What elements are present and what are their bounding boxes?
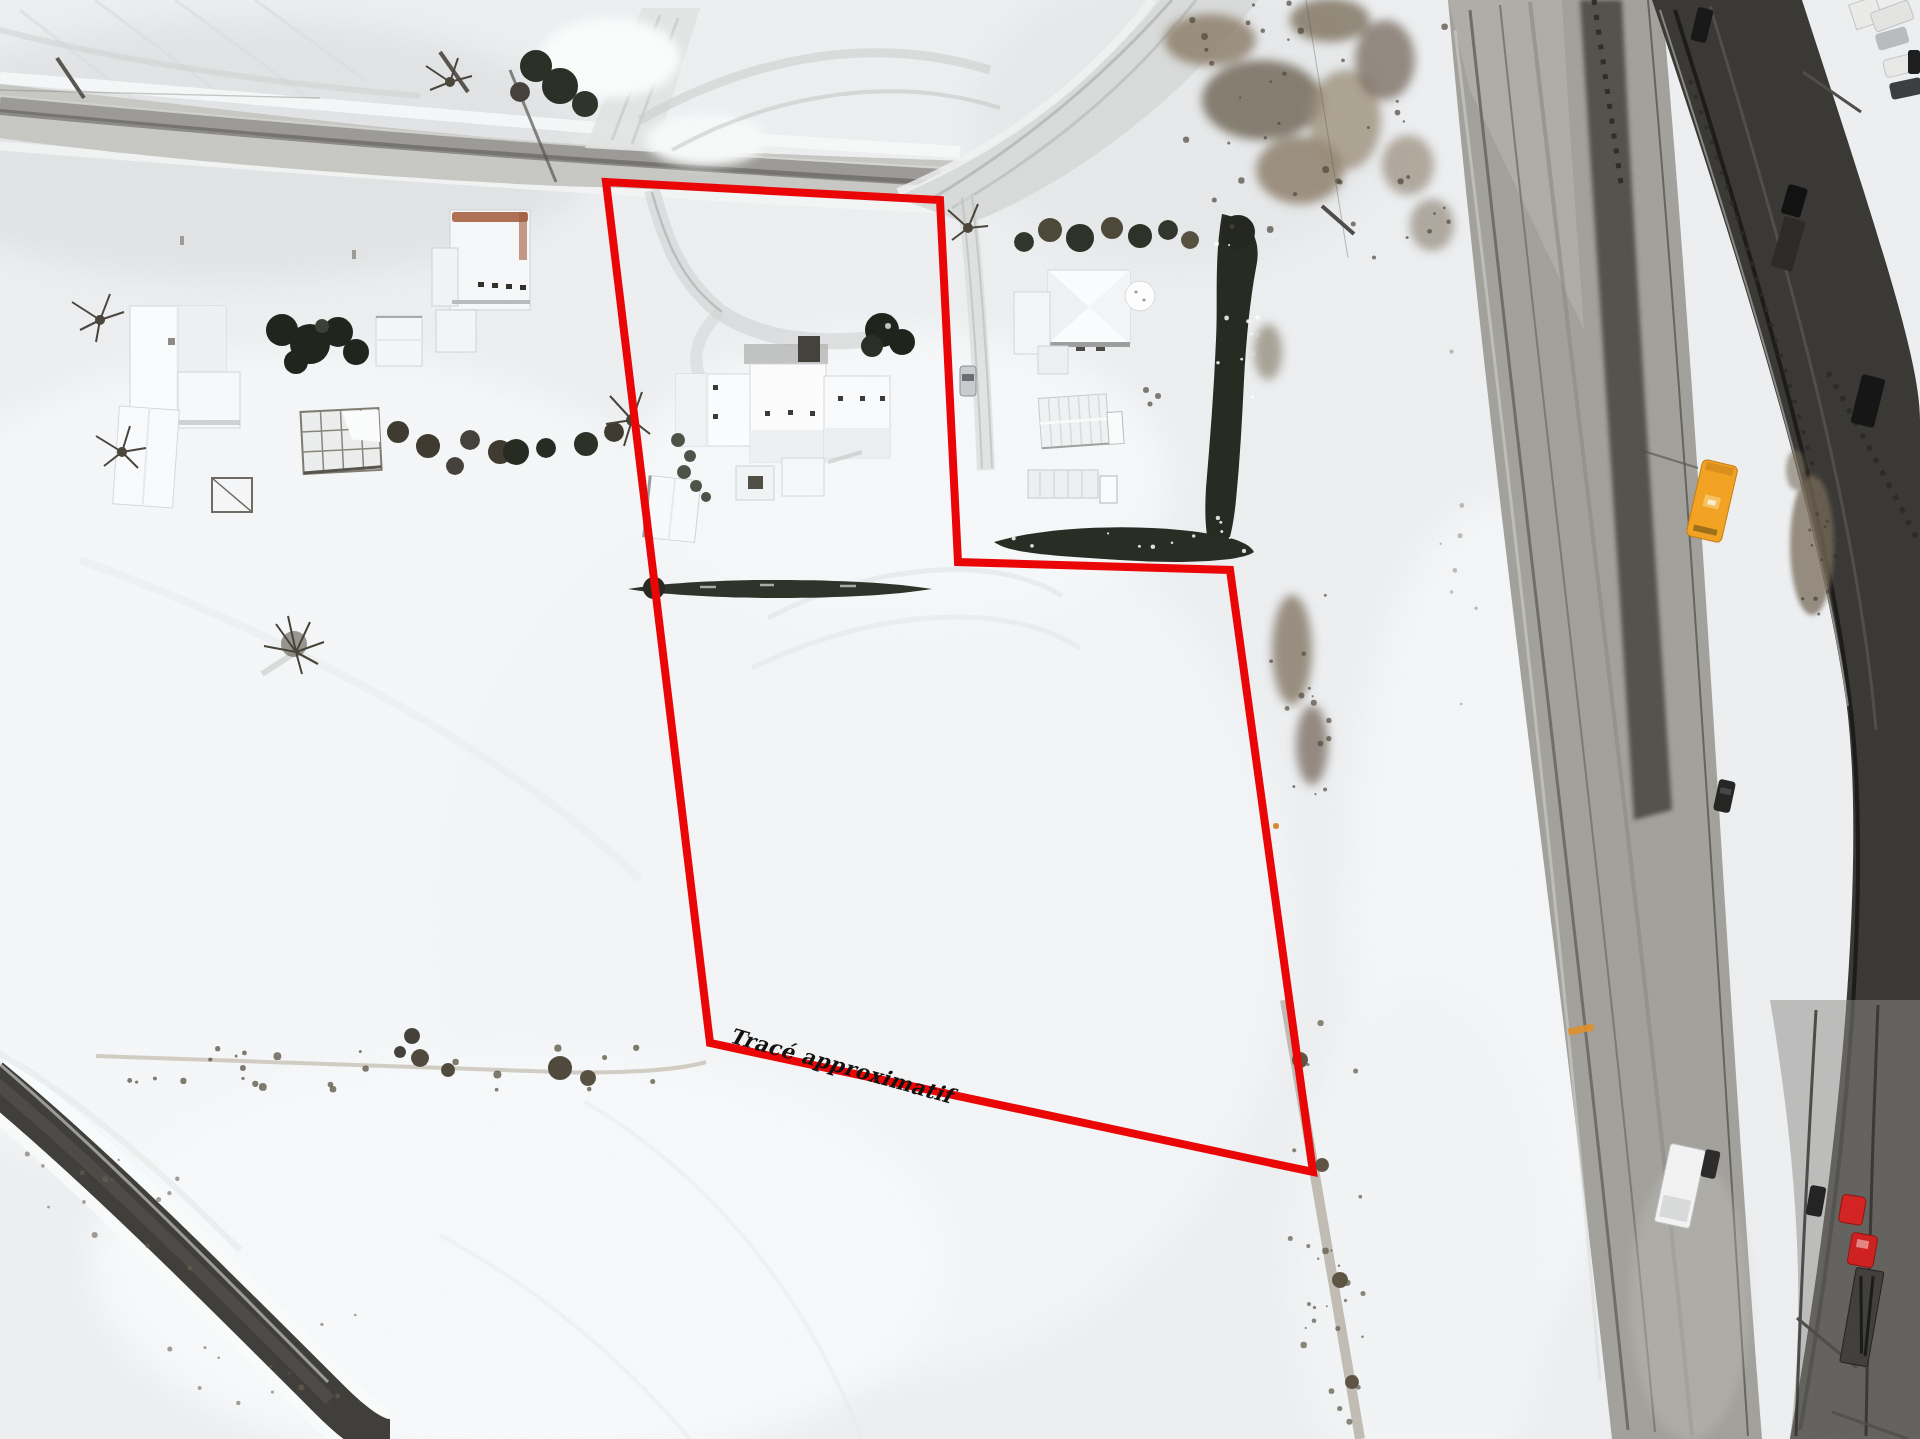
aerial-scene: Tracé approximatif	[0, 0, 1920, 1439]
photo-grain	[0, 0, 1920, 1439]
aerial-photo: Tracé approximatif	[0, 0, 1920, 1439]
